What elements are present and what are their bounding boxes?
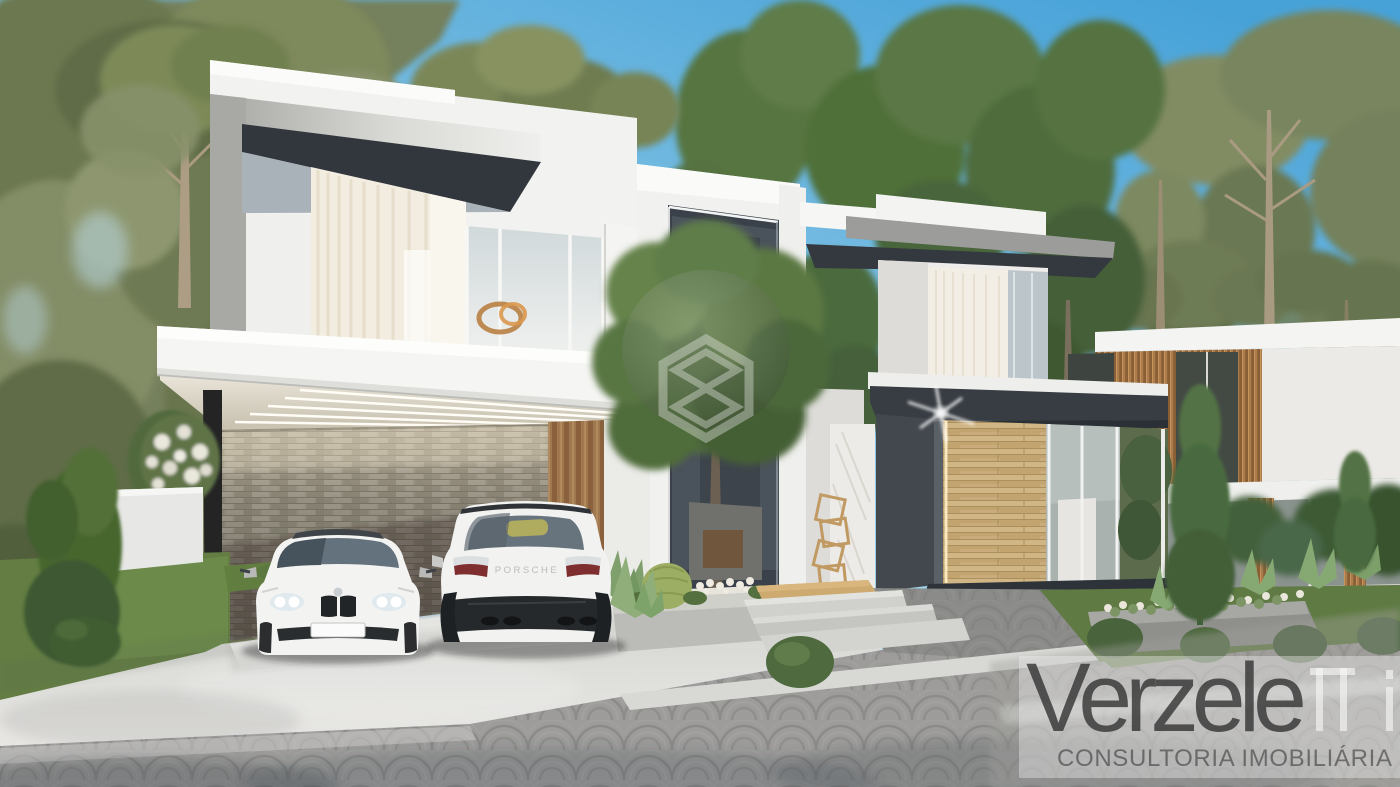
svg-text:CONSULTORIA IMOBILIÁRIA: CONSULTORIA IMOBILIÁRIA (1057, 745, 1393, 772)
svg-text:Verzele: Verzele (1026, 643, 1303, 752)
svg-text:PORSCHE: PORSCHE (495, 565, 559, 576)
